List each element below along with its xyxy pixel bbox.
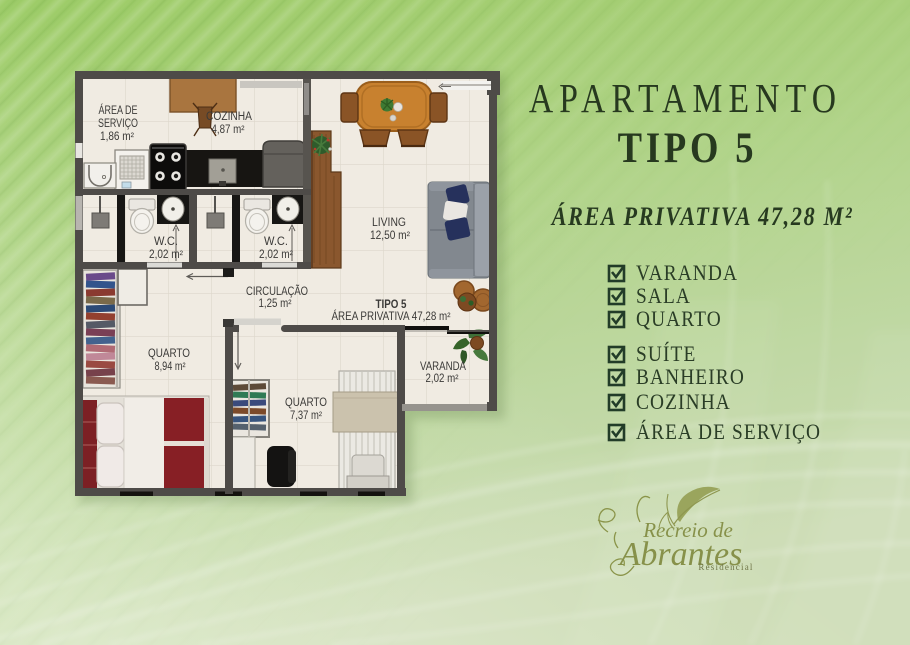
svg-text:TIPO 5: TIPO 5: [376, 297, 407, 311]
svg-text:SERVIÇO: SERVIÇO: [98, 118, 138, 130]
svg-text:COZINHA: COZINHA: [206, 111, 252, 123]
svg-text:Residencial: Residencial: [698, 562, 753, 572]
svg-text:W.C.: W.C.: [154, 236, 178, 248]
svg-text:ÁREA DE: ÁREA DE: [99, 104, 138, 117]
svg-text:W.C.: W.C.: [264, 236, 288, 248]
svg-text:8,94 m²: 8,94 m²: [155, 361, 186, 373]
svg-text:LIVING: LIVING: [372, 217, 406, 229]
svg-text:2,02 m²: 2,02 m²: [259, 249, 293, 261]
svg-text:7,37 m²: 7,37 m²: [290, 410, 322, 422]
svg-text:1,25 m²: 1,25 m²: [259, 298, 292, 310]
svg-text:2,02 m²: 2,02 m²: [426, 373, 459, 385]
svg-text:ÁREA PRIVATIVA 47,28 m²: ÁREA PRIVATIVA 47,28 m²: [332, 310, 451, 323]
svg-text:CIRCULAÇÃO: CIRCULAÇÃO: [246, 285, 308, 298]
svg-text:1,86 m²: 1,86 m²: [100, 131, 134, 143]
svg-text:12,50 m²: 12,50 m²: [370, 230, 410, 242]
svg-text:4,87 m²: 4,87 m²: [212, 124, 245, 136]
svg-text:QUARTO: QUARTO: [148, 348, 190, 360]
svg-text:QUARTO: QUARTO: [285, 397, 327, 409]
svg-text:VARANDA: VARANDA: [420, 361, 466, 373]
svg-text:2,02 m²: 2,02 m²: [149, 249, 183, 261]
